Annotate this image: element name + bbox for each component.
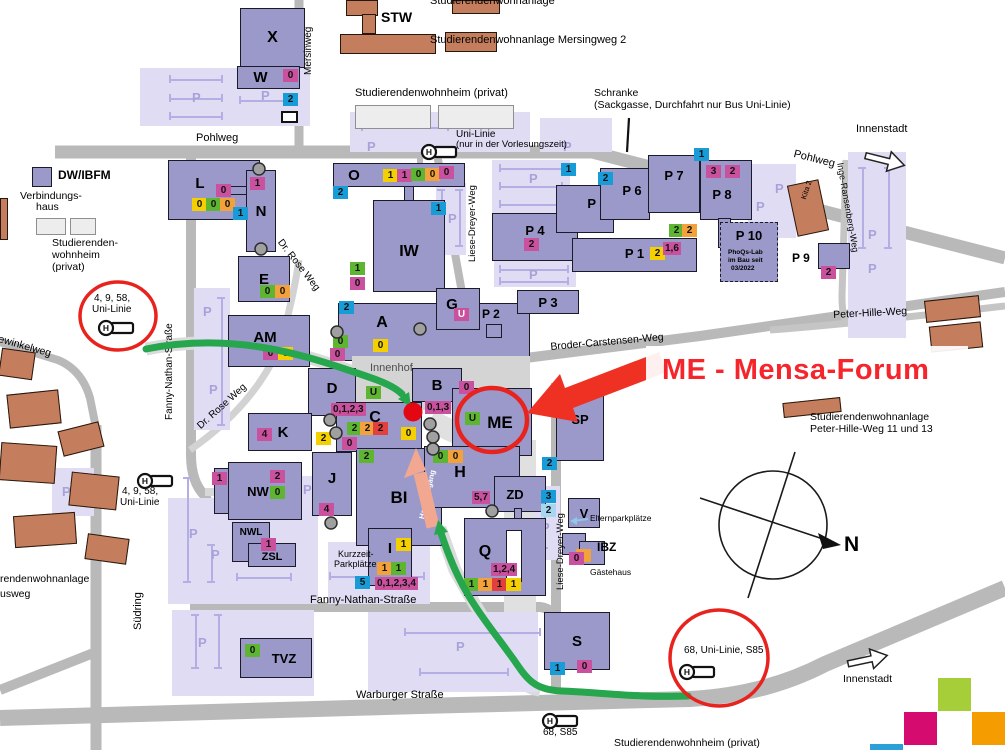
annotation-layer: ME - Mensa-Forum bbox=[0, 0, 1005, 750]
annotation-text: ME - Mensa-Forum bbox=[662, 355, 929, 385]
campus-map: PPPPPPPPPPPPPPPPPPPP XWLNOIWEAMAGP 3P 4P… bbox=[0, 0, 1005, 750]
